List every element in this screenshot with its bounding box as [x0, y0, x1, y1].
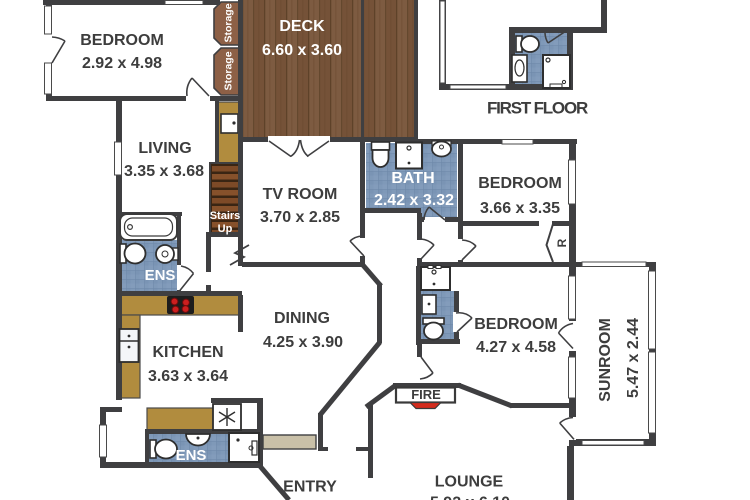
- svg-text:3.66 x 3.35: 3.66 x 3.35: [480, 200, 560, 217]
- svg-text:TV ROOM: TV ROOM: [263, 186, 338, 203]
- svg-text:Stairs: Stairs: [210, 210, 241, 222]
- svg-text:5.47 x 2.44: 5.47 x 2.44: [625, 318, 642, 398]
- svg-text:BEDROOM: BEDROOM: [80, 32, 164, 49]
- svg-text:FIRST FLOOR: FIRST FLOOR: [487, 99, 588, 118]
- svg-text:DINING: DINING: [274, 310, 330, 327]
- svg-text:LOUNGE: LOUNGE: [435, 474, 504, 491]
- svg-text:R: R: [555, 238, 569, 247]
- svg-text:6.60 x 3.60: 6.60 x 3.60: [262, 42, 342, 59]
- svg-text:KITCHEN: KITCHEN: [152, 344, 223, 361]
- svg-text:5.92 x 6.10: 5.92 x 6.10: [430, 495, 510, 500]
- svg-text:ENS: ENS: [145, 267, 176, 284]
- svg-text:BATH: BATH: [391, 170, 434, 187]
- svg-text:3.63 x 3.64: 3.63 x 3.64: [148, 368, 228, 385]
- svg-text:4.25 x 3.90: 4.25 x 3.90: [263, 334, 343, 351]
- svg-text:4.27 x 4.58: 4.27 x 4.58: [476, 339, 556, 356]
- svg-text:ENTRY: ENTRY: [283, 479, 337, 496]
- svg-text:Up: Up: [218, 223, 233, 235]
- svg-text:2.42 x 3.32: 2.42 x 3.32: [374, 192, 454, 209]
- svg-text:BEDROOM: BEDROOM: [474, 316, 558, 333]
- svg-text:DECK: DECK: [279, 18, 325, 35]
- svg-text:FIRE: FIRE: [411, 387, 441, 402]
- svg-text:LIVING: LIVING: [138, 140, 191, 157]
- svg-text:3.35 x 3.68: 3.35 x 3.68: [124, 163, 204, 180]
- svg-text:Storage: Storage: [223, 3, 235, 42]
- svg-text:ENS: ENS: [176, 447, 207, 464]
- svg-text:2.92 x 4.98: 2.92 x 4.98: [82, 55, 162, 72]
- svg-text:SUNROOM: SUNROOM: [597, 318, 614, 402]
- svg-text:BEDROOM: BEDROOM: [478, 175, 562, 192]
- svg-text:3.70 x 2.85: 3.70 x 2.85: [260, 209, 340, 226]
- svg-text:Storage: Storage: [223, 51, 235, 90]
